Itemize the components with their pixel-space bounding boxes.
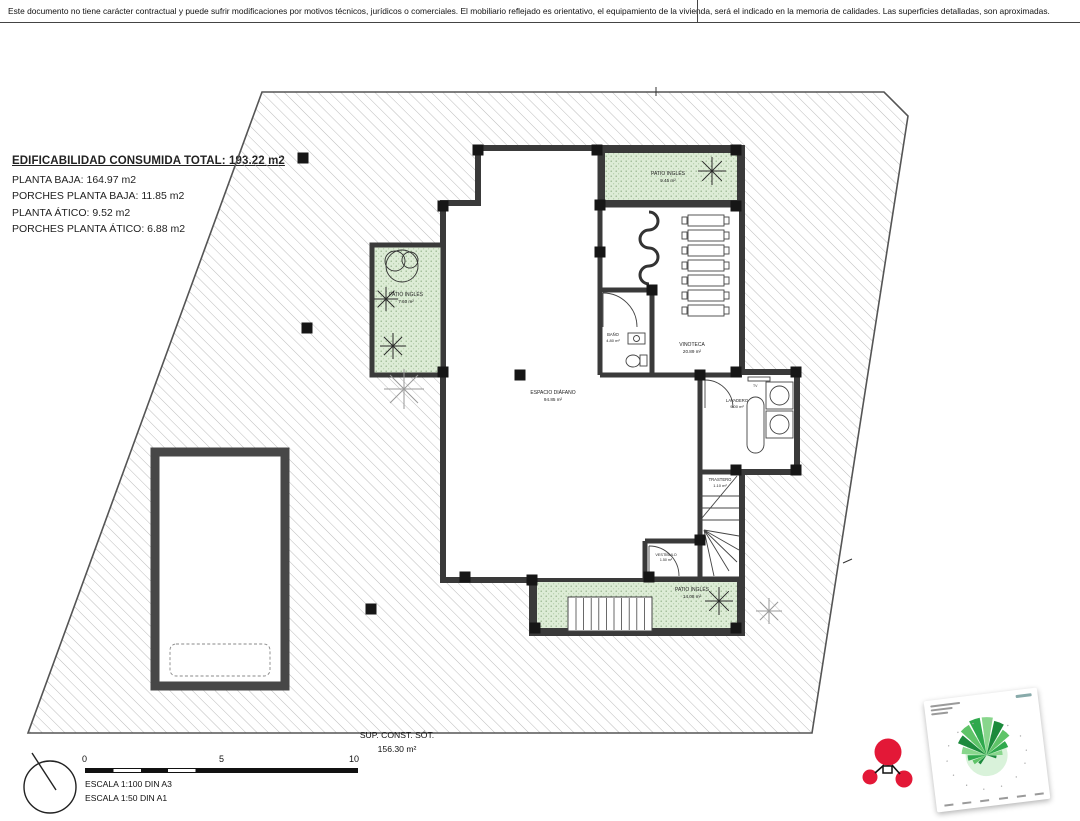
patio-ingles-left: [372, 245, 443, 375]
building-outline: [443, 148, 797, 633]
site-plan-drawing: [0, 0, 1080, 821]
tv-label: TV: [753, 384, 757, 388]
scale-text-1: ESCALA 1:100 DIN A3: [85, 779, 172, 789]
red-logo: [858, 736, 920, 794]
patio-stair: [568, 597, 652, 631]
scale-text-2: ESCALA 1:50 DIN A1: [85, 793, 167, 803]
room-label-patio-top: PATIO INGLÉS 9.45 m²: [651, 171, 685, 184]
wine-rack: [682, 215, 729, 316]
basement-surface-area: 156.30 m²: [360, 743, 434, 757]
room-label-espacio-diafano: ESPACIO DIÁFANO 94.85 m²: [530, 390, 575, 403]
room-label-patio-left: PATIO INGLÉS 7.60 m²: [389, 292, 423, 305]
room-label-trastero: TRASTERO 1.10 m²: [709, 477, 732, 488]
north-arrow-icon: [18, 748, 88, 818]
room-label-vinoteca: VINOTECA 20.89 m²: [679, 342, 705, 355]
pool: [155, 452, 285, 686]
room-label-patio-bottom: PATIO INGLÉS 14.08 m²: [675, 587, 709, 600]
sun-rose-chart: [932, 705, 1043, 799]
room-label-lavadero: LAVADERO 9.00 m²: [726, 398, 748, 409]
scale-bar-alternating: [86, 769, 223, 772]
scale-num-5: 5: [219, 754, 224, 764]
sun-study-card: [924, 687, 1051, 812]
scale-num-10: 10: [349, 754, 359, 764]
basement-surface-note: SUP. CONST. SÓT. 156.30 m²: [360, 729, 434, 757]
scale-num-0: 0: [82, 754, 87, 764]
room-label-vestibulo: VESTÍBULO 1.50 m²: [655, 553, 676, 563]
basement-surface-title: SUP. CONST. SÓT.: [360, 729, 434, 743]
scale-bar-solid: [223, 769, 357, 772]
room-label-bano: BAÑO 4.80 m²: [606, 332, 620, 343]
graphic-scale-bar: [85, 768, 358, 773]
card-brand-mark: [1016, 693, 1032, 697]
floorplan-sheet: Este documento no tiene carácter contrac…: [0, 0, 1080, 821]
